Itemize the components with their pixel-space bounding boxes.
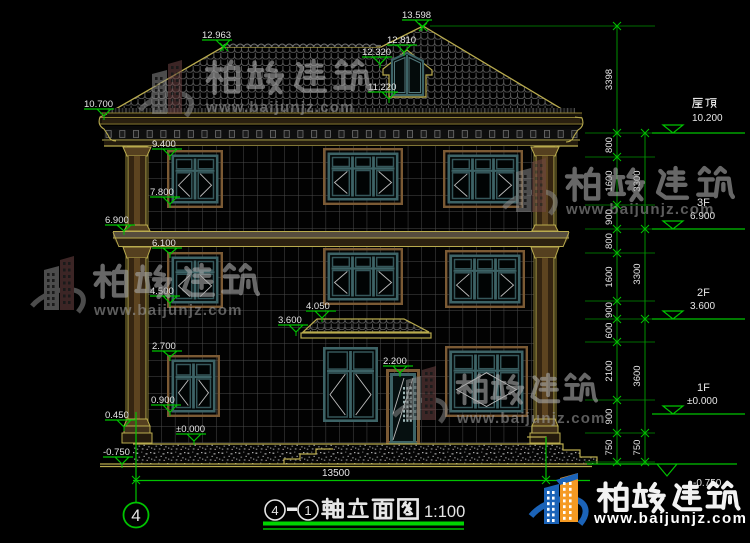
svg-text:750: 750: [604, 440, 615, 456]
svg-text:12.320: 12.320: [362, 47, 391, 58]
svg-text:12.963: 12.963: [202, 30, 231, 41]
svg-text:750: 750: [632, 440, 643, 456]
svg-text:10.200: 10.200: [692, 113, 723, 124]
svg-text:3.600: 3.600: [690, 301, 715, 312]
svg-text:3.600: 3.600: [278, 315, 302, 326]
svg-text:13500: 13500: [322, 468, 350, 479]
svg-text:2100: 2100: [604, 360, 615, 381]
svg-text:2.200: 2.200: [383, 356, 407, 367]
svg-text:www.baijunjz.com: www.baijunjz.com: [456, 410, 606, 427]
svg-text:1F: 1F: [697, 382, 710, 394]
svg-text:11.220: 11.220: [368, 82, 396, 93]
svg-text:12.810: 12.810: [387, 35, 416, 46]
svg-text:www.baijunjz.com: www.baijunjz.com: [205, 99, 355, 116]
svg-text:13.598: 13.598: [402, 10, 431, 21]
svg-text:www.baijunjz.com: www.baijunjz.com: [93, 302, 243, 319]
svg-text:www.baijunjz.com: www.baijunjz.com: [565, 201, 715, 218]
svg-text:0.900: 0.900: [151, 395, 175, 406]
svg-text:2.700: 2.700: [152, 341, 176, 352]
svg-text:900: 900: [604, 302, 615, 318]
svg-text:800: 800: [604, 233, 615, 249]
svg-text:10.700: 10.700: [84, 99, 113, 110]
svg-text:600: 600: [604, 323, 615, 339]
svg-text:1600: 1600: [604, 266, 615, 287]
svg-text:6.900: 6.900: [105, 215, 129, 226]
svg-text:2F: 2F: [697, 287, 710, 299]
svg-text:www.baijunjz.com: www.baijunjz.com: [593, 510, 747, 527]
svg-text:7.800: 7.800: [150, 187, 174, 198]
svg-text:6.100: 6.100: [152, 238, 176, 249]
svg-text:4: 4: [271, 503, 278, 518]
svg-text:0.450: 0.450: [105, 410, 129, 421]
svg-text:3600: 3600: [632, 365, 643, 386]
svg-text:-0.750: -0.750: [103, 447, 130, 458]
svg-text:4: 4: [131, 506, 140, 525]
svg-text:3398: 3398: [604, 69, 615, 90]
svg-text:1: 1: [304, 503, 311, 518]
svg-text:±0.000: ±0.000: [176, 424, 205, 435]
svg-text:4.050: 4.050: [306, 301, 330, 312]
svg-text:±0.000: ±0.000: [687, 396, 718, 407]
svg-text:1:100: 1:100: [424, 503, 465, 521]
svg-text:9.400: 9.400: [152, 139, 176, 150]
svg-text:3300: 3300: [632, 263, 643, 284]
svg-text:800: 800: [604, 137, 615, 153]
